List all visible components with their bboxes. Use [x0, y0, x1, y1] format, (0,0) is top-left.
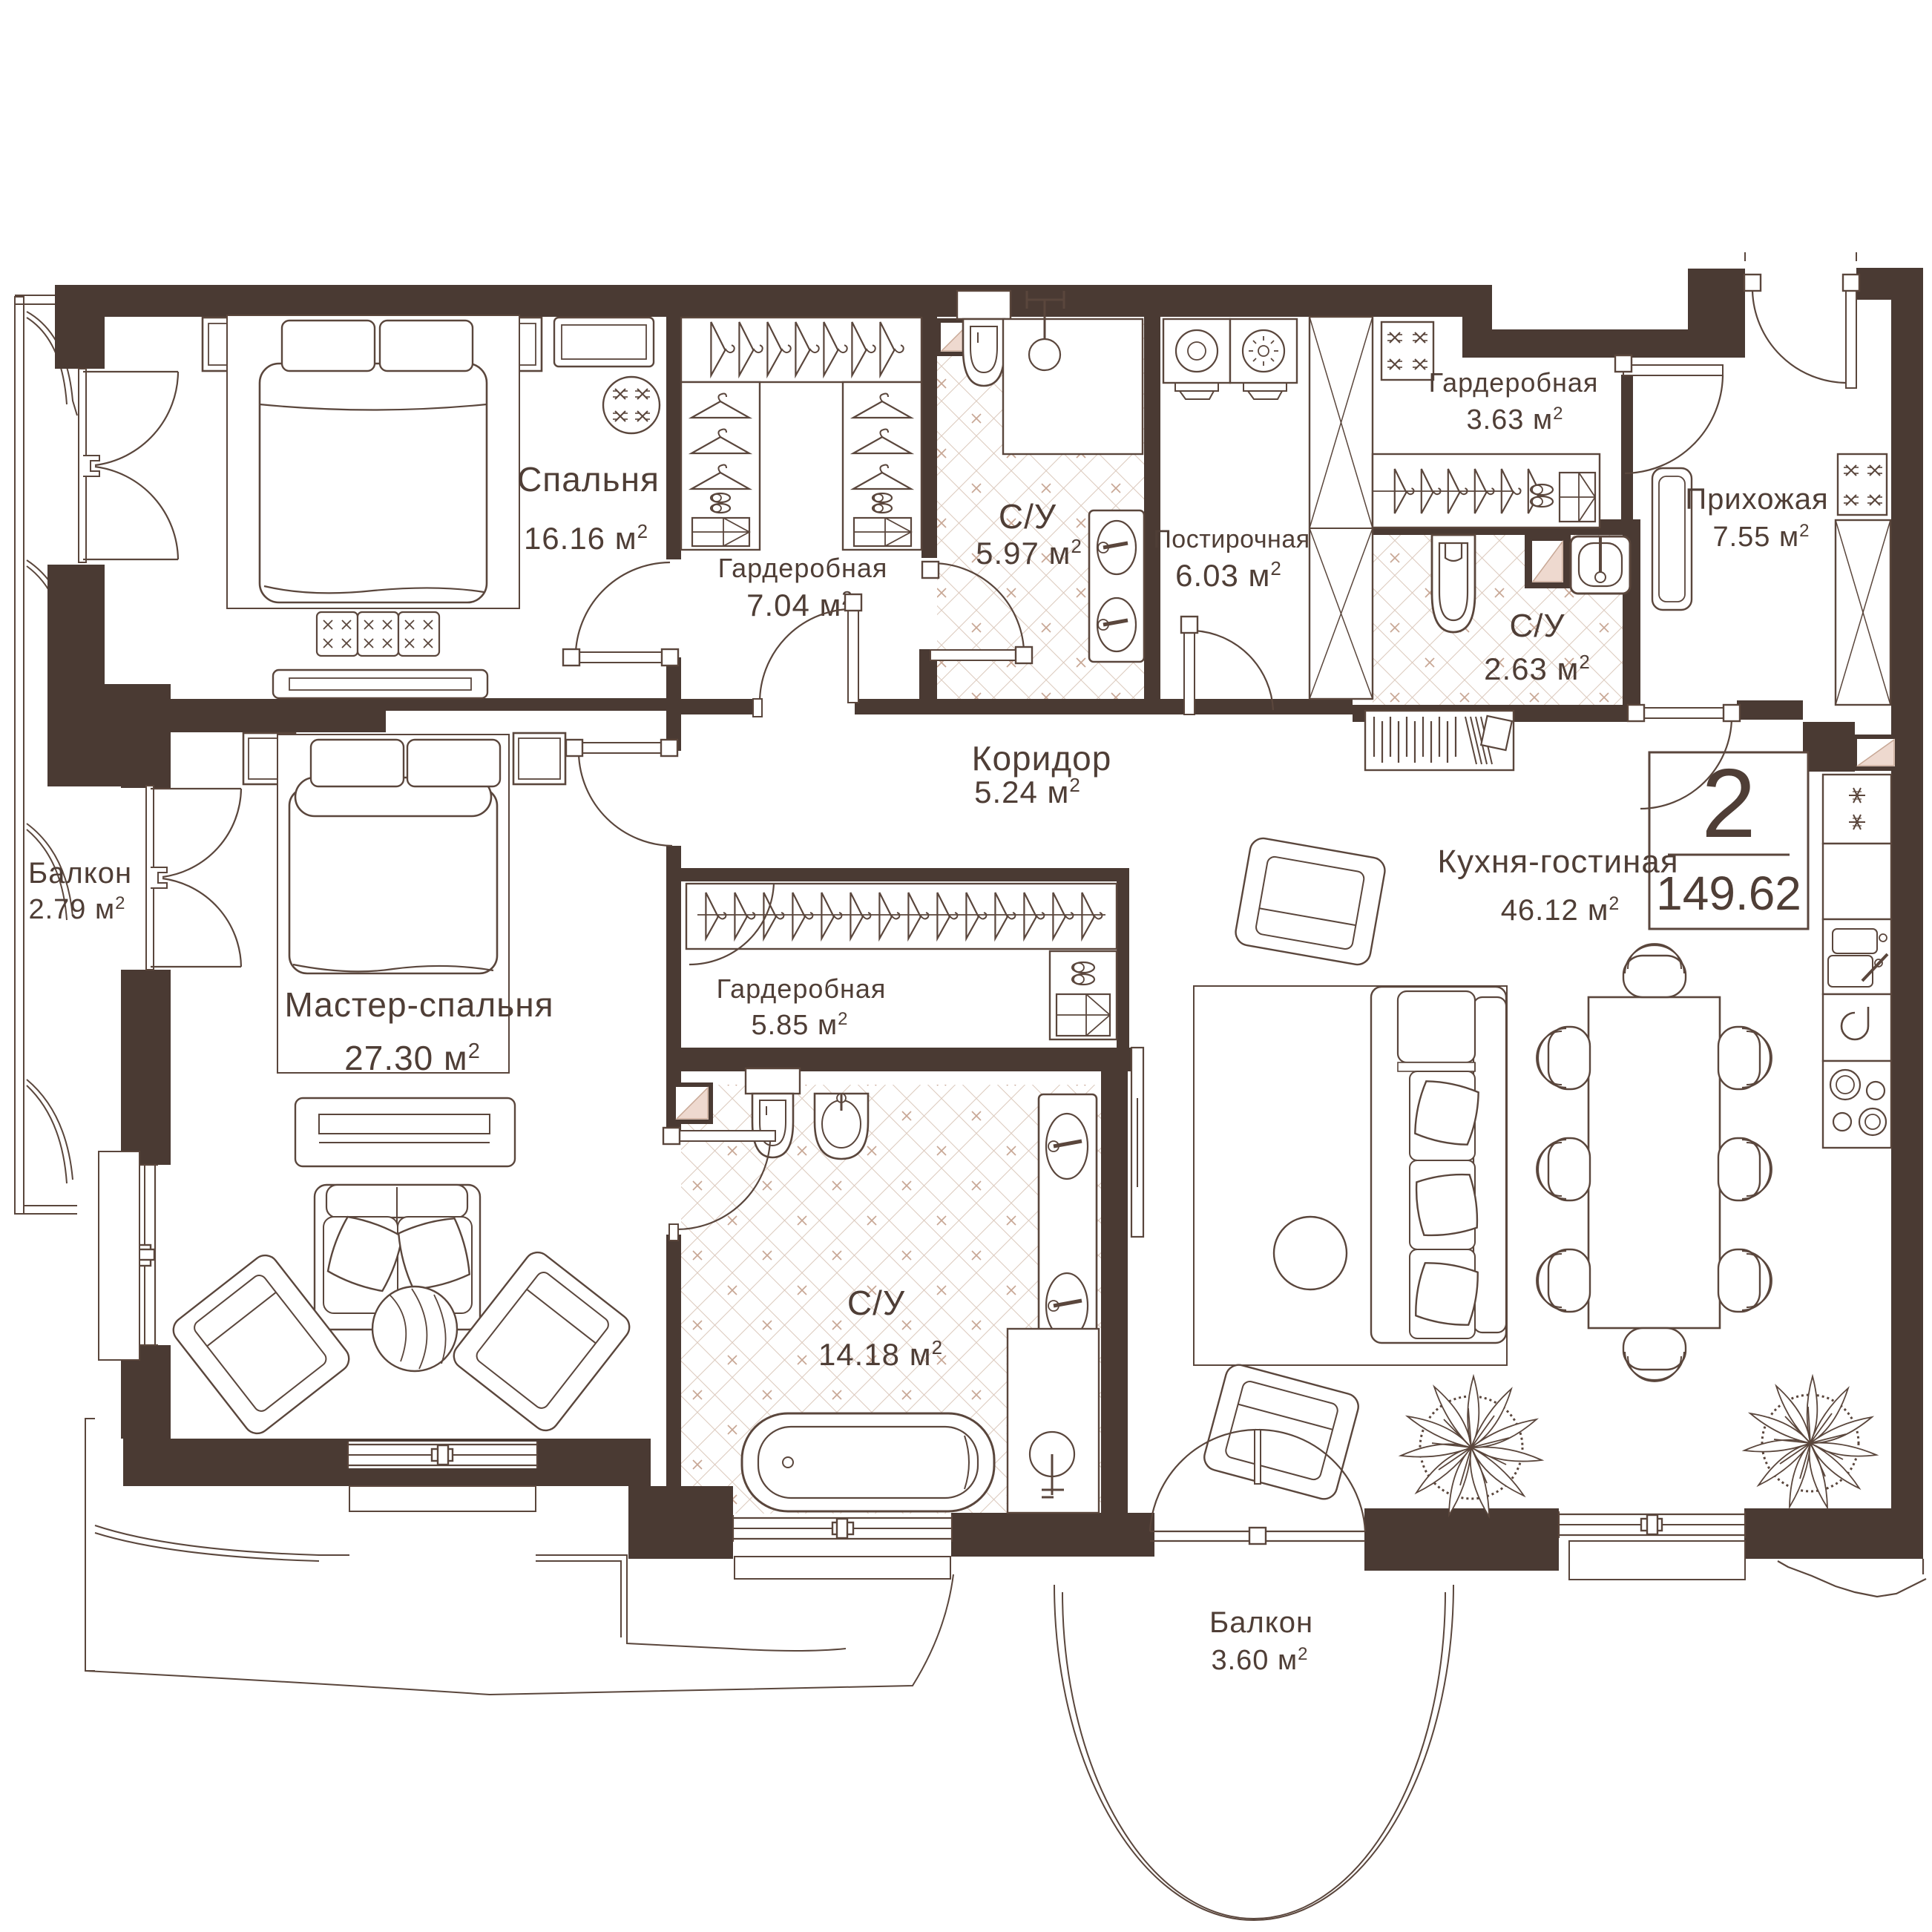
svg-text:Кухня-гостиная: Кухня-гостиная [1437, 844, 1678, 880]
svg-text:Балкон: Балкон [28, 857, 132, 890]
svg-text:3.60 м2: 3.60 м2 [1211, 1644, 1308, 1676]
svg-text:5.85 м2: 5.85 м2 [751, 1009, 848, 1041]
svg-text:Гардеробная: Гардеробная [1429, 367, 1599, 398]
svg-text:Спальня: Спальня [517, 460, 660, 499]
svg-text:Гардеробная: Гардеробная [718, 553, 888, 583]
svg-text:5.24 м2: 5.24 м2 [974, 774, 1081, 809]
svg-text:2: 2 [1701, 749, 1755, 858]
svg-text:С/У: С/У [999, 497, 1057, 536]
svg-text:Гардеробная: Гардеробная [717, 973, 887, 1004]
svg-text:Коридор: Коридор [972, 739, 1112, 778]
svg-text:5.97 м2: 5.97 м2 [976, 535, 1082, 571]
svg-text:2.79 м2: 2.79 м2 [28, 893, 125, 925]
svg-text:2.63 м2: 2.63 м2 [1484, 651, 1591, 686]
svg-text:27.30 м2: 27.30 м2 [344, 1039, 481, 1077]
svg-text:Постирочная: Постирочная [1153, 525, 1310, 553]
svg-text:Балкон: Балкон [1209, 1606, 1313, 1639]
svg-text:3.63 м2: 3.63 м2 [1466, 404, 1563, 436]
svg-text:Мастер-спальня: Мастер-спальня [284, 985, 553, 1024]
svg-text:6.03 м2: 6.03 м2 [1175, 557, 1282, 593]
svg-text:С/У: С/У [847, 1284, 905, 1322]
svg-text:С/У: С/У [1510, 608, 1565, 644]
svg-text:14.18 м2: 14.18 м2 [818, 1336, 943, 1372]
svg-text:46.12 м2: 46.12 м2 [1501, 893, 1620, 927]
svg-text:7.04 м2: 7.04 м2 [746, 587, 853, 622]
svg-text:Прихожая: Прихожая [1685, 483, 1828, 516]
svg-text:7.55 м2: 7.55 м2 [1712, 521, 1810, 553]
svg-text:16.16 м2: 16.16 м2 [524, 520, 648, 556]
